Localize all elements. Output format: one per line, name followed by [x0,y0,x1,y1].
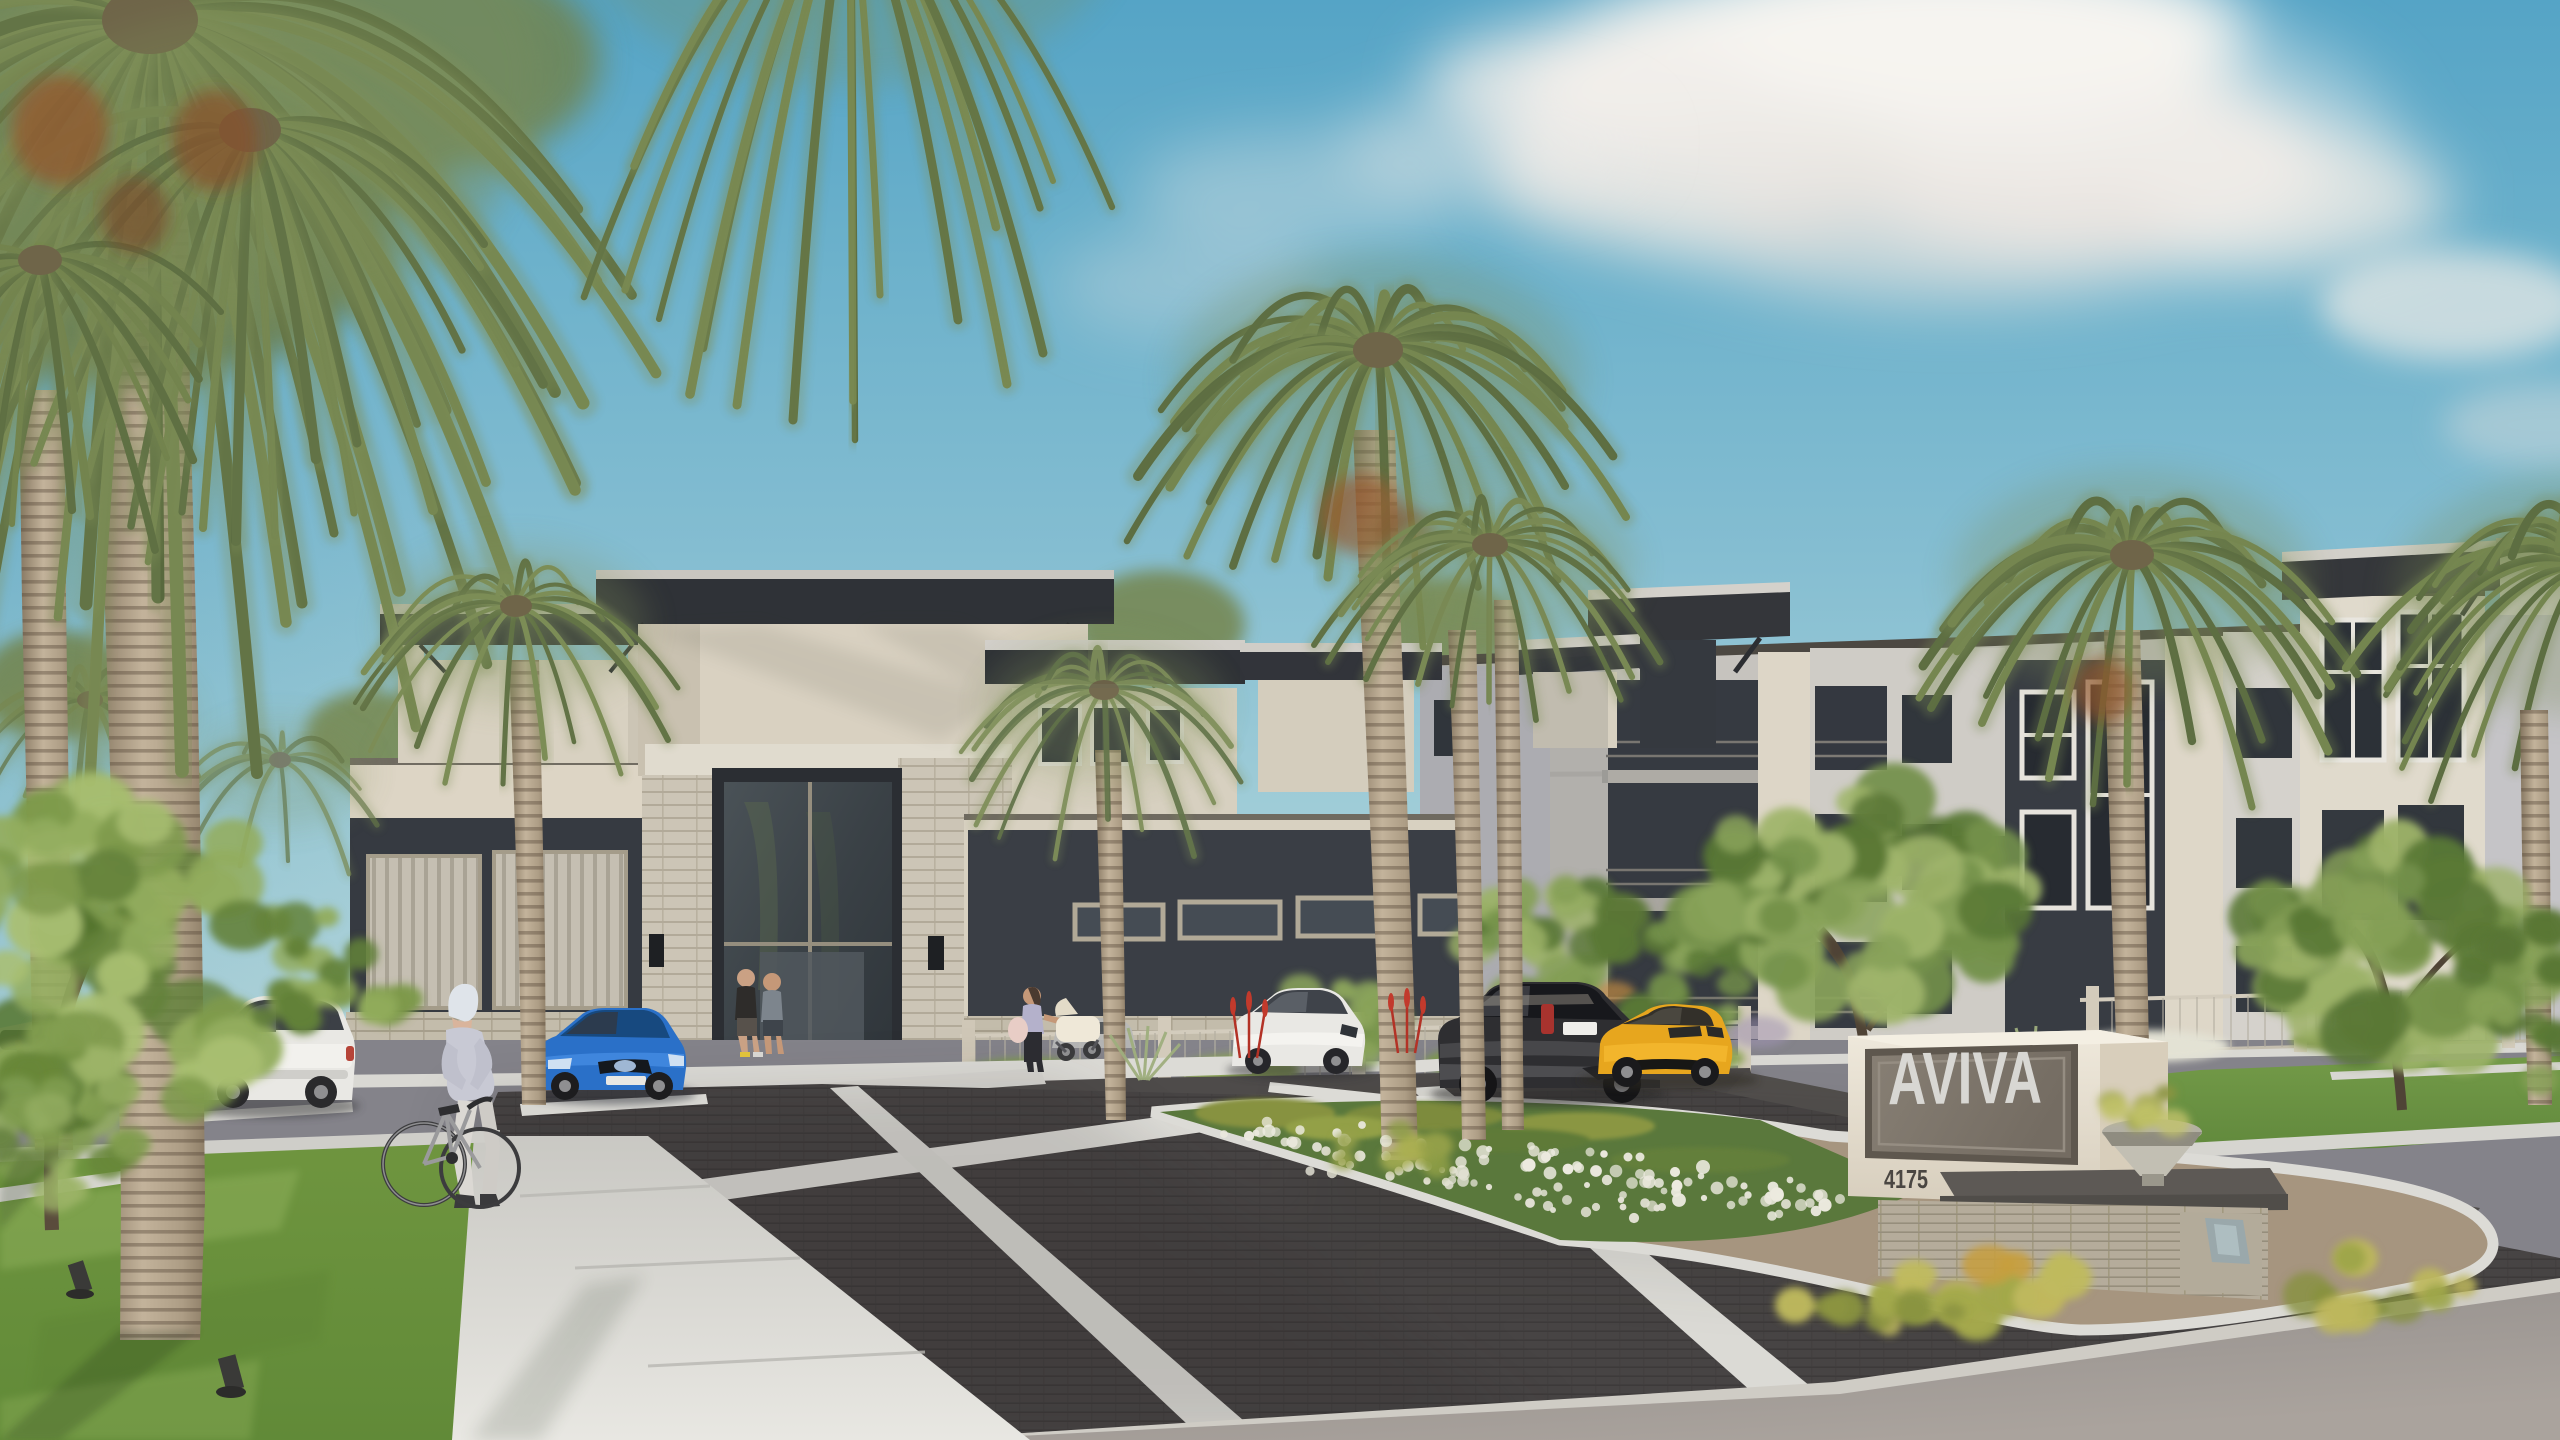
svg-text:AVIVA: AVIVA [1888,1036,2042,1121]
svg-text:4175: 4175 [1884,1164,1928,1194]
